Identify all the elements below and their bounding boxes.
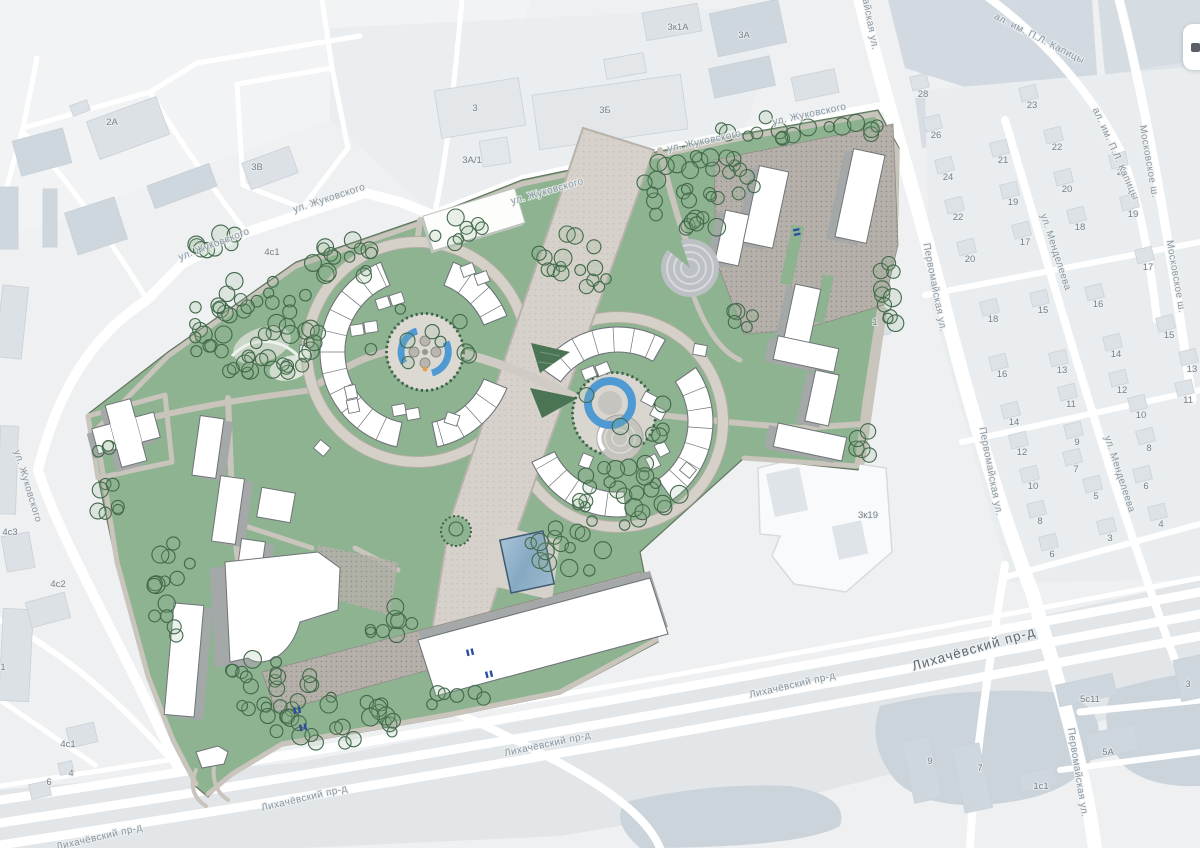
house-number-label: 14 <box>1111 349 1122 360</box>
tree-icon <box>386 713 401 728</box>
tree-icon <box>682 162 699 179</box>
tree-icon <box>244 651 262 669</box>
tree-icon <box>594 542 611 559</box>
house-number-label: 20 <box>965 254 976 265</box>
tree-icon <box>324 248 338 262</box>
terrace-unit <box>392 403 407 416</box>
tree-icon <box>215 344 228 357</box>
tree-icon <box>344 252 355 263</box>
tree-icon <box>647 187 658 198</box>
tree-icon <box>587 260 602 275</box>
tree-icon <box>532 246 546 260</box>
tree-icon <box>305 255 322 272</box>
map-building <box>0 426 19 515</box>
tree-icon <box>425 325 439 339</box>
tree-icon <box>584 565 595 576</box>
tree-icon <box>578 468 593 483</box>
house-number-label: 4с3 <box>2 527 17 538</box>
tree-icon <box>636 468 653 485</box>
house-number-label: 23 <box>1027 100 1038 111</box>
house-number-label: 3к1А <box>667 22 689 33</box>
tree-icon <box>268 276 279 287</box>
house-number-label: 6 <box>1143 481 1148 492</box>
tree-icon <box>864 122 880 138</box>
tree-icon <box>167 537 180 550</box>
tree-icon <box>860 424 875 439</box>
tree-icon <box>280 362 293 375</box>
house-number-label: 24 <box>943 172 954 183</box>
house-number-label: 16 <box>1093 299 1104 310</box>
tree-icon <box>448 236 463 251</box>
tree-icon <box>391 613 407 629</box>
tree-icon <box>260 709 275 724</box>
house-number-label: 4с1 <box>0 662 6 673</box>
tree-icon <box>708 219 726 237</box>
tree-icon <box>228 363 240 375</box>
tree-icon <box>271 657 282 668</box>
map-building <box>479 137 511 167</box>
house-number-label: 10 <box>1028 481 1039 492</box>
tree-icon <box>635 505 650 520</box>
tree-icon <box>743 131 753 141</box>
terrace-unit <box>346 398 359 413</box>
tree-icon <box>147 578 162 593</box>
house-number-label: 3к19 <box>858 510 878 521</box>
tree-icon <box>303 669 317 683</box>
house-number-label: 3 <box>1107 533 1112 544</box>
tree-icon <box>848 115 865 132</box>
house-number-label: 1 <box>872 317 877 328</box>
house-number-label: 6 <box>1049 549 1054 560</box>
house-number-label: 7 <box>1073 464 1078 475</box>
tree-icon <box>690 217 704 231</box>
house-number-label: 1с1 <box>1033 781 1048 792</box>
house-number-label: 18 <box>1075 222 1086 233</box>
house-number-label: 12 <box>1017 447 1028 458</box>
house-number-label: 14 <box>1009 417 1020 428</box>
tree-icon <box>190 319 201 330</box>
tree-icon <box>450 689 464 703</box>
tree-icon <box>567 228 583 244</box>
house-number-label: 4с1 <box>264 247 279 258</box>
tree-icon <box>300 289 312 301</box>
map-building <box>0 608 33 701</box>
tree-icon <box>573 493 587 507</box>
map-viewport[interactable]: 2А3В4с13к1А3А33Б3А/128232622212124201919… <box>0 0 1200 848</box>
tree-icon <box>652 428 667 443</box>
tree-icon <box>296 359 309 372</box>
tree-icon <box>561 559 578 576</box>
map-control-button[interactable] <box>1183 24 1200 70</box>
tree-icon <box>281 325 299 343</box>
tree-icon <box>531 533 548 550</box>
tree-icon <box>266 296 280 310</box>
house-number-label: 3А <box>738 30 750 41</box>
tree-icon <box>270 725 283 738</box>
tree-icon <box>579 388 594 403</box>
tree-icon <box>883 313 893 323</box>
house-number-label: 20 <box>1062 184 1073 195</box>
tree-icon <box>742 322 753 333</box>
tree-icon <box>759 111 772 124</box>
tree-icon <box>240 671 252 683</box>
house-number-label: 4 <box>68 768 73 779</box>
tree-icon <box>719 150 734 165</box>
tree-icon <box>587 516 597 526</box>
house-number-label: 22 <box>1052 142 1063 153</box>
house-number-label: 16 <box>997 369 1008 380</box>
tree-icon <box>234 294 247 307</box>
tree-icon <box>587 240 601 254</box>
tree-icon <box>553 265 569 281</box>
map-canvas: 2А3В4с13к1А3А33Б3А/128232622212124201919… <box>0 0 1200 848</box>
tree-icon <box>682 193 697 208</box>
tree-icon <box>184 558 195 569</box>
tree-icon <box>548 521 563 536</box>
tree-icon <box>305 729 318 742</box>
tree-icon <box>320 696 337 713</box>
tree-icon <box>728 316 741 329</box>
house-number-label: 17 <box>1020 237 1031 248</box>
house-number-label: 10 <box>1136 410 1147 421</box>
tree-icon <box>211 298 226 313</box>
tree-icon <box>152 546 169 563</box>
tree-icon <box>191 346 202 357</box>
house-number-label: 21 <box>998 155 1009 166</box>
house-number-label: 4с2 <box>50 579 65 590</box>
terrace-unit <box>350 324 364 337</box>
tree-icon <box>283 305 297 319</box>
house-number-label: 3Б <box>599 105 611 116</box>
tree-icon <box>270 667 281 678</box>
tree-icon <box>339 737 351 749</box>
tree-icon <box>258 328 271 341</box>
tree-icon <box>389 627 405 643</box>
tree-icon <box>670 485 688 503</box>
tree-icon <box>167 620 181 634</box>
tree-icon <box>190 302 201 313</box>
tree-icon <box>376 625 389 638</box>
house-number-label: 26 <box>931 130 942 141</box>
tree-icon <box>732 187 745 200</box>
tree-icon <box>449 522 463 536</box>
house-number-label: 7 <box>977 763 982 774</box>
tree-icon <box>612 418 628 434</box>
terrace-unit <box>406 407 421 420</box>
house-number-label: 5с11 <box>1080 694 1100 705</box>
tree-icon <box>575 527 590 542</box>
house-number-label: 15 <box>1038 305 1049 316</box>
tree-icon <box>733 163 746 176</box>
tree-icon <box>113 504 123 514</box>
tree-icon <box>650 208 663 221</box>
tree-icon <box>93 445 105 457</box>
tree-icon <box>601 274 611 284</box>
map-building <box>43 189 57 247</box>
tree-icon <box>190 332 201 343</box>
house-number-label: 3В <box>251 162 263 173</box>
house-number-label: 3 <box>472 103 477 114</box>
house-number-label: 11 <box>1183 395 1193 406</box>
house-number-label: 4 <box>1158 519 1163 530</box>
tree-icon <box>344 232 361 249</box>
tree-icon <box>149 610 161 622</box>
tree-icon <box>226 273 243 290</box>
terrace-unit <box>344 384 357 399</box>
layers-icon <box>1191 43 1200 52</box>
tree-icon <box>477 692 490 705</box>
house-number-label: 15 <box>1164 330 1175 341</box>
tree-icon <box>447 209 464 226</box>
tree-icon <box>650 154 667 171</box>
tree-icon <box>256 353 268 365</box>
tree-icon <box>438 688 450 700</box>
tree-icon <box>291 716 306 731</box>
tree-icon <box>290 694 305 709</box>
house-number-label: 28 <box>918 89 929 100</box>
house-number-label: 22 <box>953 212 964 223</box>
tree-icon <box>215 326 232 343</box>
tree-icon <box>655 396 671 412</box>
house-number-label: 5А <box>1102 747 1114 758</box>
tree-icon <box>706 191 716 201</box>
house-number-label: 13 <box>1187 364 1198 375</box>
tree-icon <box>575 265 586 276</box>
terrace-unit <box>693 343 708 356</box>
tree-icon <box>824 122 834 132</box>
house-number-label: 3 <box>1185 679 1190 690</box>
tree-icon <box>887 265 900 278</box>
tree-icon <box>630 486 644 500</box>
tree-icon <box>565 543 575 553</box>
house-number-label: 18 <box>988 314 999 325</box>
tree-icon <box>365 344 377 356</box>
tree-icon <box>690 151 701 162</box>
house-number-label: 3А/1 <box>462 155 482 166</box>
tree-icon <box>461 348 476 363</box>
tree-icon <box>387 599 404 616</box>
house-number-label: 5 <box>1093 491 1098 502</box>
house-number-label: 13 <box>1057 365 1068 376</box>
tree-icon <box>92 482 108 498</box>
tree-icon <box>430 230 441 241</box>
tree-icon <box>242 350 255 363</box>
school-wing <box>257 487 296 522</box>
house-number-label: 4с1 <box>60 739 75 750</box>
tree-icon <box>330 722 343 735</box>
house-number-label: 8 <box>1146 443 1151 454</box>
map-building <box>0 187 18 249</box>
house-number-label: 17 <box>1143 262 1154 273</box>
tree-icon <box>747 310 759 322</box>
tree-icon <box>99 507 111 519</box>
tree-icon <box>356 268 371 283</box>
tree-icon <box>776 132 788 144</box>
tree-icon <box>619 520 629 530</box>
house-number-label: 9 <box>927 756 932 767</box>
tree-icon <box>629 435 641 447</box>
tree-icon <box>702 149 719 166</box>
house-number-label: 8 <box>1037 516 1042 527</box>
tree-icon <box>598 462 611 475</box>
house-number-label: 2А <box>106 117 118 128</box>
tree-icon <box>170 571 184 585</box>
house-number-label: 11 <box>1066 399 1076 410</box>
tree-icon <box>476 222 489 235</box>
tree-icon <box>604 477 615 488</box>
tree-icon <box>366 247 377 258</box>
tree-icon <box>395 304 405 314</box>
house-number-label: 9 <box>1074 437 1079 448</box>
house-number-label: 19 <box>1128 209 1139 220</box>
tree-icon <box>654 495 671 512</box>
terrace-unit <box>364 321 378 334</box>
tree-icon <box>400 333 415 348</box>
tree-icon <box>554 249 572 267</box>
tree-icon <box>402 357 414 369</box>
tree-icon <box>406 618 418 630</box>
house-number-label: 12 <box>1117 385 1128 396</box>
tree-icon <box>748 180 760 192</box>
tree-icon <box>877 298 891 312</box>
tree-icon <box>306 335 322 351</box>
tree-icon <box>237 701 248 712</box>
tree-icon <box>362 708 380 726</box>
house-number-label: 6 <box>46 777 51 788</box>
house-number-label: 19 <box>1008 197 1019 208</box>
tree-icon <box>453 314 467 328</box>
tree-icon <box>365 625 375 635</box>
